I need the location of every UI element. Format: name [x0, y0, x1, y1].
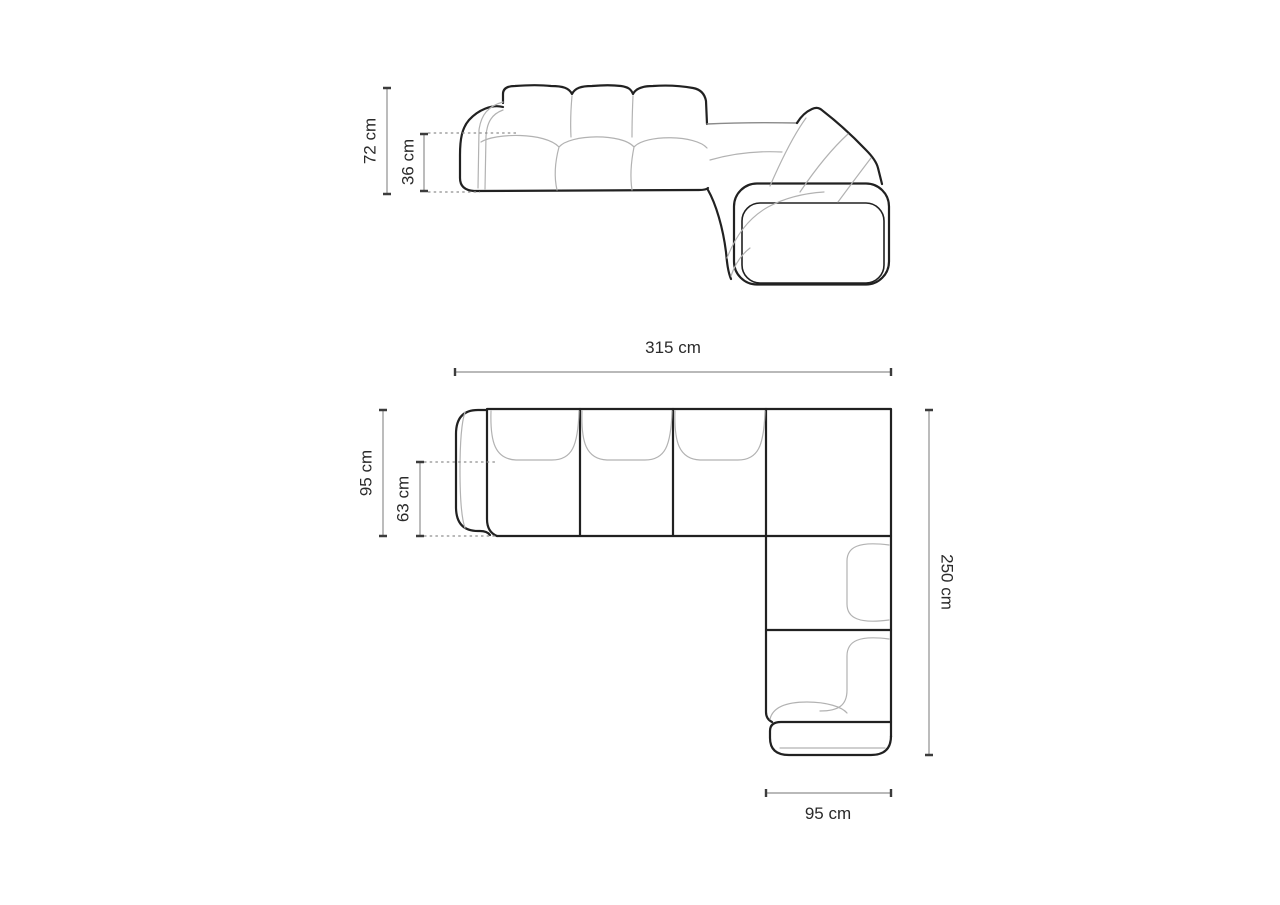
plan-module-seams	[580, 409, 891, 630]
front-corner-pillow-outline	[797, 108, 882, 184]
plan-chaise-seat-front	[770, 702, 847, 719]
plan-chaise-width-label: 95 cm	[805, 804, 851, 823]
dim-front-height: 72 cm	[361, 88, 392, 194]
dim-plan-width: 315 cm	[455, 338, 891, 376]
dim-plan-depth: 95 cm	[357, 410, 388, 536]
sofa-dimension-diagram: 72 cm 36 cm 315 cm	[0, 0, 1280, 905]
dim-plan-chaise-width: 95 cm	[766, 789, 891, 823]
plan-seat-depth-label: 63 cm	[394, 476, 413, 522]
plan-armrest-seam	[487, 410, 497, 536]
technical-drawing-svg: 72 cm 36 cm 315 cm	[0, 0, 1280, 905]
front-elevation-view	[460, 85, 889, 284]
plan-left-armrest-outline	[456, 410, 490, 535]
front-chaise-armrest-outer	[734, 184, 889, 285]
front-armrest-and-base-outline	[460, 106, 708, 191]
front-back-seams	[571, 96, 633, 137]
dim-plan-seat-depth: 63 cm	[394, 462, 498, 536]
front-height-label: 72 cm	[361, 118, 380, 164]
plan-body-outline	[487, 409, 891, 737]
front-seat-seams	[555, 147, 634, 190]
plan-armrest-inner-seam	[460, 412, 465, 528]
plan-back-cushions	[491, 411, 765, 460]
top-plan-view	[456, 409, 891, 755]
plan-width-label: 315 cm	[645, 338, 701, 357]
front-right-back-edge	[707, 123, 797, 124]
plan-chaise-armrest-outline	[770, 722, 891, 755]
dim-plan-side-length: 250 cm	[925, 410, 957, 755]
front-seat-top-seam	[481, 135, 707, 148]
front-back-cushions-outline	[503, 85, 707, 124]
plan-side-length-label: 250 cm	[938, 554, 957, 610]
front-chaise-silhouette	[708, 190, 731, 279]
front-chaise-armrest-inner	[742, 203, 884, 283]
front-seat-height-label: 36 cm	[399, 139, 418, 185]
dim-front-seat-height: 36 cm	[399, 133, 518, 192]
plan-chaise-cushions	[820, 544, 889, 711]
front-armrest-seam	[478, 102, 503, 189]
plan-depth-label: 95 cm	[357, 450, 376, 496]
